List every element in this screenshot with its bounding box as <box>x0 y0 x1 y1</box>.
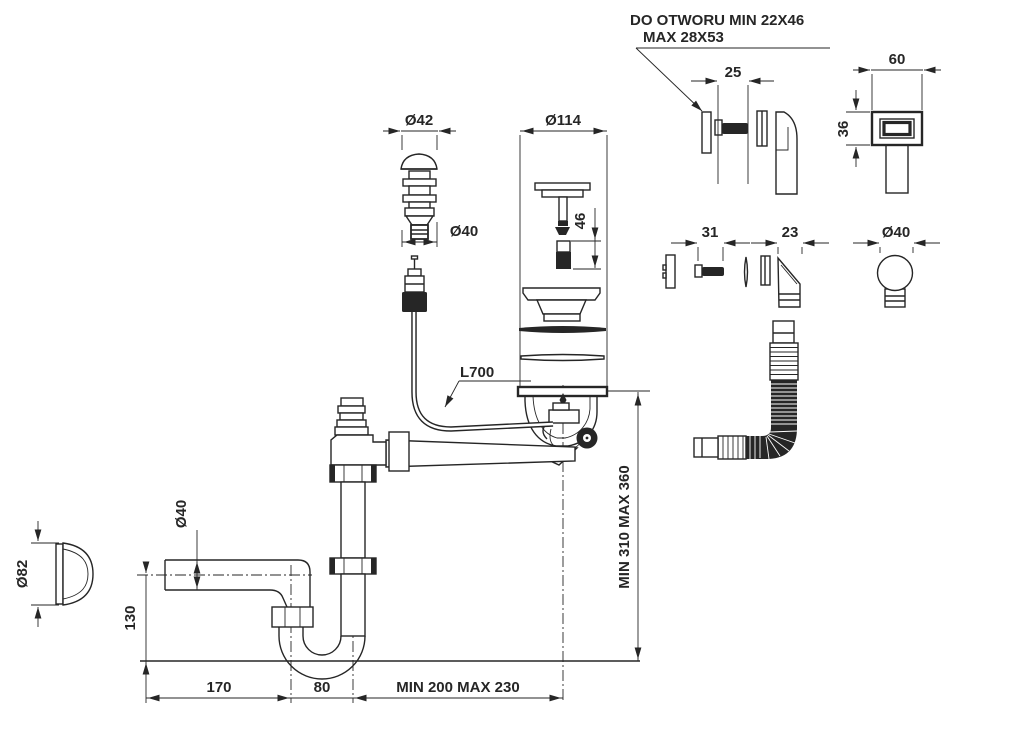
dim-25-label: 25 <box>725 64 742 81</box>
dim-46-label: 46 <box>572 213 589 230</box>
dim-130-label: 130 <box>122 605 139 630</box>
strainer-basket <box>523 288 600 321</box>
dim-23: 23 <box>751 224 829 254</box>
overflow-screw-group: 25 <box>691 64 797 194</box>
flex-hose <box>694 321 798 459</box>
overflow-plate-small <box>666 255 675 288</box>
down-pipe-upper <box>341 482 365 558</box>
dim-min310: MIN 310 MAX 360 <box>607 391 650 661</box>
compression-nut-top <box>330 465 376 482</box>
bottom-dimensions: 170 80 MIN 200 MAX 230 <box>140 661 640 698</box>
dim-170: 170 <box>146 679 291 698</box>
dim-31: 31 <box>671 224 750 261</box>
dim-60: 60 <box>853 51 941 110</box>
down-pipe-lower <box>341 574 365 636</box>
screw-head-31 <box>695 265 702 277</box>
dim-36: 36 <box>835 90 870 167</box>
dim-min200-label: MIN 200 MAX 230 <box>396 679 519 696</box>
knob-thread-tip <box>411 225 428 239</box>
screw-head <box>715 120 722 135</box>
overflow-parts-row: 31 23 Ø40 <box>663 224 940 307</box>
dim-40-knob-label: Ø40 <box>882 224 910 241</box>
dim-40-plug-label: Ø40 <box>450 223 478 240</box>
dim-82: Ø82 <box>14 521 59 627</box>
note-line-1: DO OTWORU MIN 22X46 <box>630 12 804 29</box>
overflow-elbow <box>778 258 800 307</box>
knob-cap <box>401 154 437 169</box>
overflow-gasket <box>745 257 748 287</box>
dim-130: 130 <box>122 562 146 703</box>
tee-body <box>331 435 386 465</box>
plug-pin <box>557 241 570 252</box>
dim-36-label: 36 <box>835 121 852 138</box>
dim-42: Ø42 <box>383 112 456 150</box>
dim-min200: MIN 200 MAX 230 <box>353 679 563 698</box>
dim-23-label: 23 <box>782 224 799 241</box>
hose-end-connector <box>694 438 718 457</box>
u-bend-inner <box>303 627 341 655</box>
dim-40-pipe: Ø40 <box>173 500 197 590</box>
dim-114-label: Ø114 <box>545 112 582 129</box>
overflow-screw-31 <box>702 267 724 276</box>
overflow-plate <box>702 112 711 153</box>
overflow-cover-front: 60 36 <box>835 51 941 193</box>
dim-31-label: 31 <box>702 224 719 241</box>
dim-170-label: 170 <box>206 679 231 696</box>
dim-80-label: 80 <box>314 679 331 696</box>
hose-top-connector <box>773 321 794 343</box>
dim-40-knob: Ø40 <box>853 224 940 253</box>
note-line-2: MAX 28X53 <box>643 29 724 46</box>
dim-l700-label: L700 <box>460 364 494 381</box>
overflow-knob <box>878 256 913 308</box>
dim-82-label: Ø82 <box>14 560 31 588</box>
dim-80: 80 <box>291 679 353 698</box>
dim-60-label: 60 <box>889 51 906 68</box>
control-knob: Ø42 Ø40 <box>383 112 478 247</box>
gasket-top <box>519 326 606 333</box>
connecting-pipe <box>386 440 575 467</box>
siphon-trap: Ø40 130 <box>122 398 575 703</box>
dim-46: 46 <box>571 208 601 269</box>
pull-cable: L700 <box>402 256 553 429</box>
overflow-cover-side <box>776 112 797 194</box>
tee-inlet-connector <box>335 398 368 435</box>
strainer-assembly: Ø114 46 <box>518 112 650 661</box>
dim-l700: L700 <box>445 364 531 407</box>
overflow-cover-stem <box>886 145 908 193</box>
dim-42-label: Ø42 <box>405 112 433 129</box>
side-cover: Ø82 <box>14 521 93 627</box>
hole-size-note: DO OTWORU MIN 22X46 MAX 28X53 <box>630 12 830 111</box>
dim-min310-label: MIN 310 MAX 360 <box>616 465 633 588</box>
outlet-pipe <box>165 560 310 607</box>
dim-40-pipe-label: Ø40 <box>173 500 190 528</box>
drain-kit-drawing: DO OTWORU MIN 22X46 MAX 28X53 25 <box>0 0 1018 740</box>
gasket-bottom <box>521 355 604 361</box>
overflow-screw <box>722 123 748 134</box>
note-leader-line <box>636 48 702 111</box>
pipe-coupling <box>389 432 409 471</box>
technical-drawing-page: DO OTWORU MIN 22X46 MAX 28X53 25 <box>0 0 1018 740</box>
compression-nut-left <box>272 607 313 627</box>
compression-nut-mid <box>330 558 376 574</box>
